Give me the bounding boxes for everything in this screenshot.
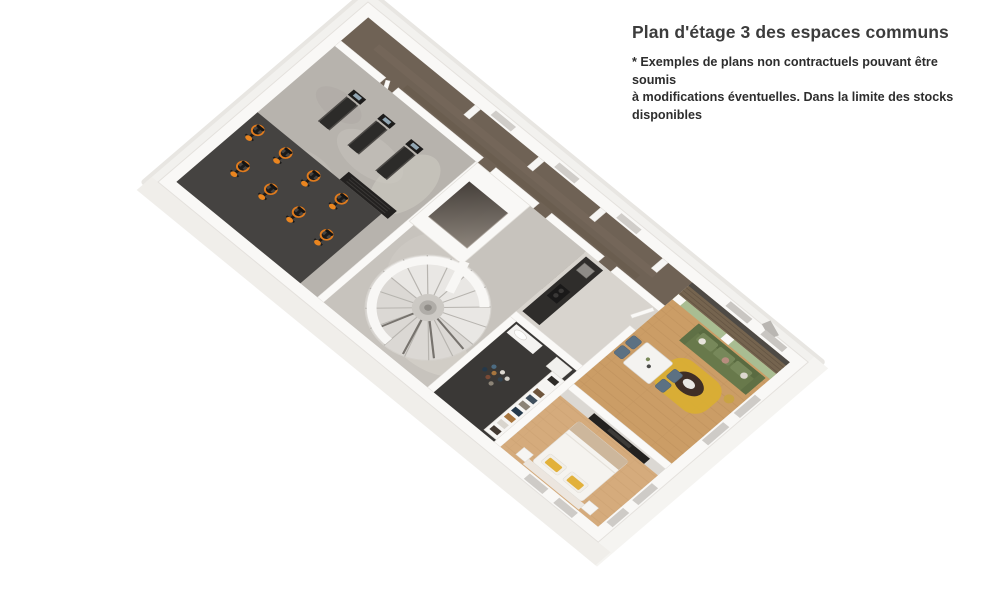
floor-plan-page: Plan d'étage 3 des espaces communs * Exe… [0, 0, 1000, 592]
caption-block: Plan d'étage 3 des espaces communs * Exe… [632, 22, 984, 124]
page-title: Plan d'étage 3 des espaces communs [632, 22, 984, 43]
disclaimer-line-2: à modifications éventuelles. Dans la lim… [632, 89, 984, 124]
disclaimer-line-1: * Exemples de plans non contractuels pou… [632, 54, 984, 89]
